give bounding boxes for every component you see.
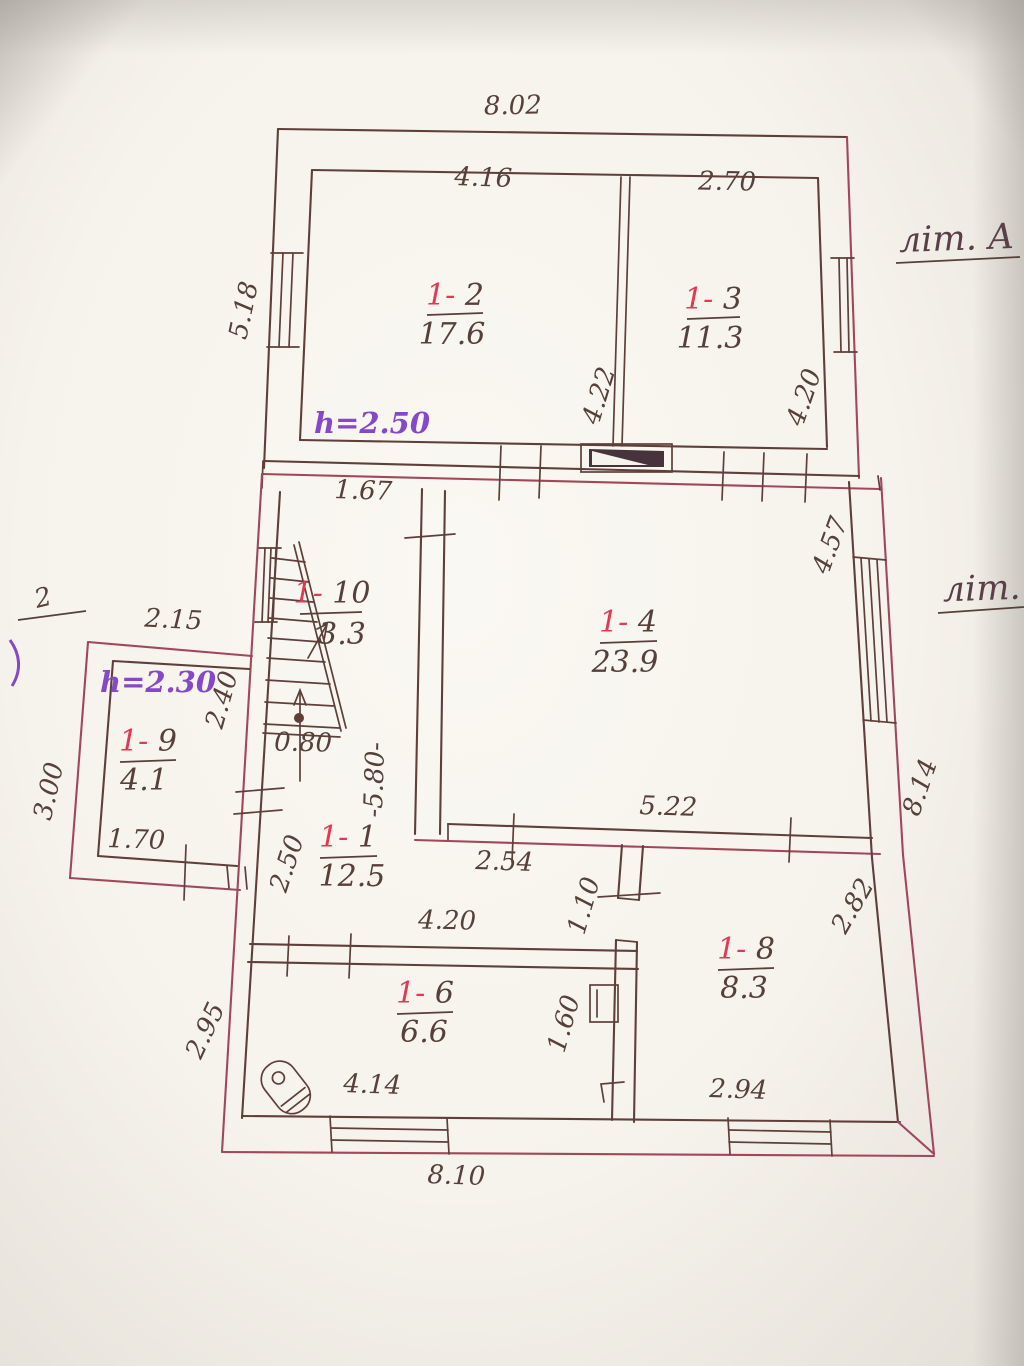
lit-second-text: літ. [942,568,1021,611]
svg-text:1- 2: 1- 2 [426,278,484,313]
lit-label-main: літ. А [896,217,1020,263]
dim-top-left-height: 5.18 [223,279,264,342]
bottom-left-window [330,1116,449,1154]
dim-room-1-4-height: 4.57 [806,513,854,579]
svg-text:1- 6: 1- 6 [396,976,454,1011]
dim-room-1-2-width: 4.16 [453,162,513,194]
lit-label-second: літ. [938,568,1024,613]
height-note-annex: h=2.30 [100,665,216,699]
room-label-1-2: 1- 2 17.6 [419,278,486,352]
dim-annex-room-width: 1.70 [107,824,166,856]
room-label-1-4: 1- 4 23.9 [591,605,659,680]
room-1-2-area: 17.6 [419,317,486,352]
room-1-1-area: 12.5 [319,859,386,894]
room-1-3-area: 11.3 [677,321,744,356]
dim-room-1-3-width: 2.70 [697,166,756,197]
room-1-4-number: 4 [637,605,657,640]
toilet-fixture [254,1054,317,1120]
svg-text:1- 10: 1- 10 [294,576,371,611]
room-1-3-number: 3 [723,282,742,317]
edge-fragment-label: 2 [10,582,86,686]
dim-room-1-8-right: 2.82 [825,873,880,939]
floor-plan-photo: 2 1- 2 17.6 1- 3 11.3 1- 4 23.9 1- 10 [0,0,1024,1366]
edge-fragment-text: 2 [30,582,54,615]
svg-text:1- 8: 1- 8 [717,932,775,967]
room-label-1-9: 1- 9 4.1 [119,724,177,798]
dim-room-1-3-height: 4.20 [781,365,829,430]
room-1-10-number: 10 [332,576,370,611]
bottom-right-window [728,1118,832,1156]
room-1-1-number: 1 [358,820,377,855]
svg-text:1- 4: 1- 4 [599,605,657,640]
room-label-1-6: 1- 6 6.6 [396,976,454,1050]
dim-building-top-width: 8.02 [484,90,542,121]
room-1-3-prefix: 1- [684,282,713,317]
room-1-1-prefix: 1- [319,820,348,855]
room-1-8-prefix: 1- [717,932,746,967]
height-note-attic: h=2.50 [314,406,430,440]
room-1-4-area: 23.9 [591,645,659,680]
floor-plan-drawing: 2 1- 2 17.6 1- 3 11.3 1- 4 23.9 1- 10 [0,0,1024,1366]
dim-bottom-left-height: 2.95 [179,998,231,1064]
room-1-10-prefix: 1- [294,576,323,611]
dim-room-1-6-width: 4.14 [342,1069,402,1101]
room-1-4-prefix: 1- [599,605,628,640]
dim-annex-width: 2.15 [143,603,203,636]
dim-room-1-6-height-right: 1.60 [542,992,587,1056]
room-1-8-number: 8 [756,932,775,967]
dim-corridor-width-upper: 2.54 [474,846,534,878]
dim-corridor-height: 2.50 [264,831,311,896]
room-label-1-1: 1- 1 12.5 [319,820,386,894]
room-1-2-number: 2 [464,278,484,313]
dim-door-1-8: 1.10 [562,874,607,938]
dim-room-1-4-width: 5.22 [639,791,698,823]
dim-middle-height: -5.80- [359,741,392,817]
dim-hall-offset: 1.67 [334,475,393,507]
room-label-1-8: 1- 8 8.3 [717,932,775,1006]
room-1-2-prefix: 1- [426,278,455,313]
dim-stairs-width: 0.80 [274,727,332,758]
lit-main-text: літ. А [898,217,1015,261]
room-1-8-area: 8.3 [720,971,768,1006]
room-1-9-number: 9 [158,724,177,759]
room-1-10-area: 3.3 [318,617,366,652]
stove-symbol [581,444,672,472]
room-1-6-number: 6 [435,976,454,1011]
dim-corridor-lower-width: 4.20 [417,905,476,936]
svg-text:1- 9: 1- 9 [119,724,177,759]
room-1-9-area: 4.1 [119,763,168,798]
dim-room-1-8-width: 2.94 [708,1074,768,1106]
svg-text:1- 3: 1- 3 [684,282,742,317]
dim-right-side-height: 8.14 [897,755,944,820]
room-1-9-prefix: 1- [119,724,148,759]
dim-building-bottom-width: 8.10 [427,1160,486,1192]
dim-annex-left-height: 3.00 [28,760,70,823]
svg-text:1- 1: 1- 1 [319,820,377,855]
room-1-6-area: 6.6 [400,1015,448,1050]
room-1-6-prefix: 1- [396,976,425,1011]
room-label-1-3: 1- 3 11.3 [677,282,744,356]
